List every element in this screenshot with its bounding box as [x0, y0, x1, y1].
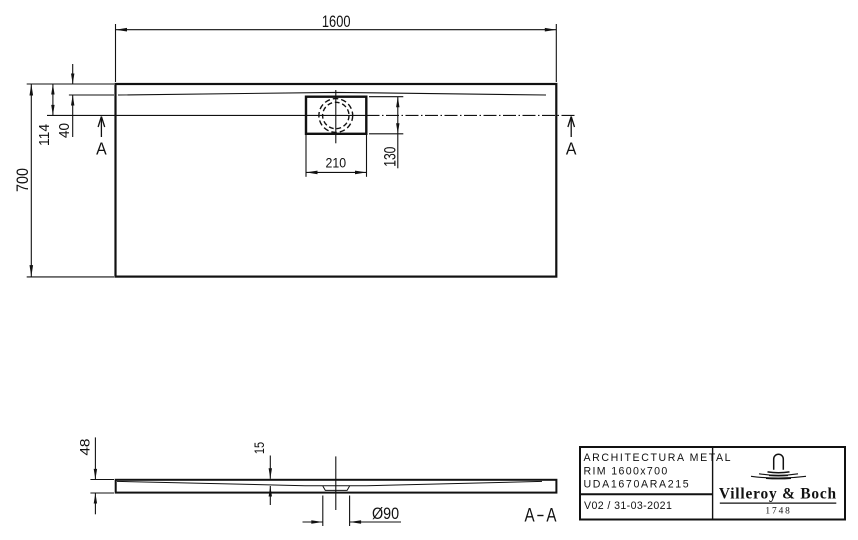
svg-text:A: A	[525, 504, 536, 526]
svg-text:130: 130	[382, 147, 400, 167]
svg-text:A: A	[566, 139, 577, 159]
svg-text:A: A	[96, 139, 107, 159]
svg-text:RIM 1600x700: RIM 1600x700	[584, 466, 669, 478]
svg-text:700: 700	[14, 168, 32, 192]
svg-text:V02 / 31-03-2021: V02 / 31-03-2021	[584, 500, 672, 512]
svg-text:1600: 1600	[322, 13, 351, 31]
svg-text:1748: 1748	[765, 507, 791, 517]
svg-text:40: 40	[56, 123, 73, 138]
svg-text:210: 210	[326, 155, 347, 171]
svg-text:Ø90: Ø90	[372, 505, 399, 523]
svg-text:15: 15	[252, 442, 268, 454]
svg-text:48: 48	[78, 439, 93, 456]
svg-text:UDA1670ARA215: UDA1670ARA215	[584, 479, 691, 491]
svg-text:ARCHITECTURA METAL: ARCHITECTURA METAL	[584, 452, 733, 464]
svg-text:A: A	[546, 504, 557, 526]
svg-text:114: 114	[37, 124, 54, 146]
svg-text:Villeroy & Boch: Villeroy & Boch	[719, 485, 837, 502]
